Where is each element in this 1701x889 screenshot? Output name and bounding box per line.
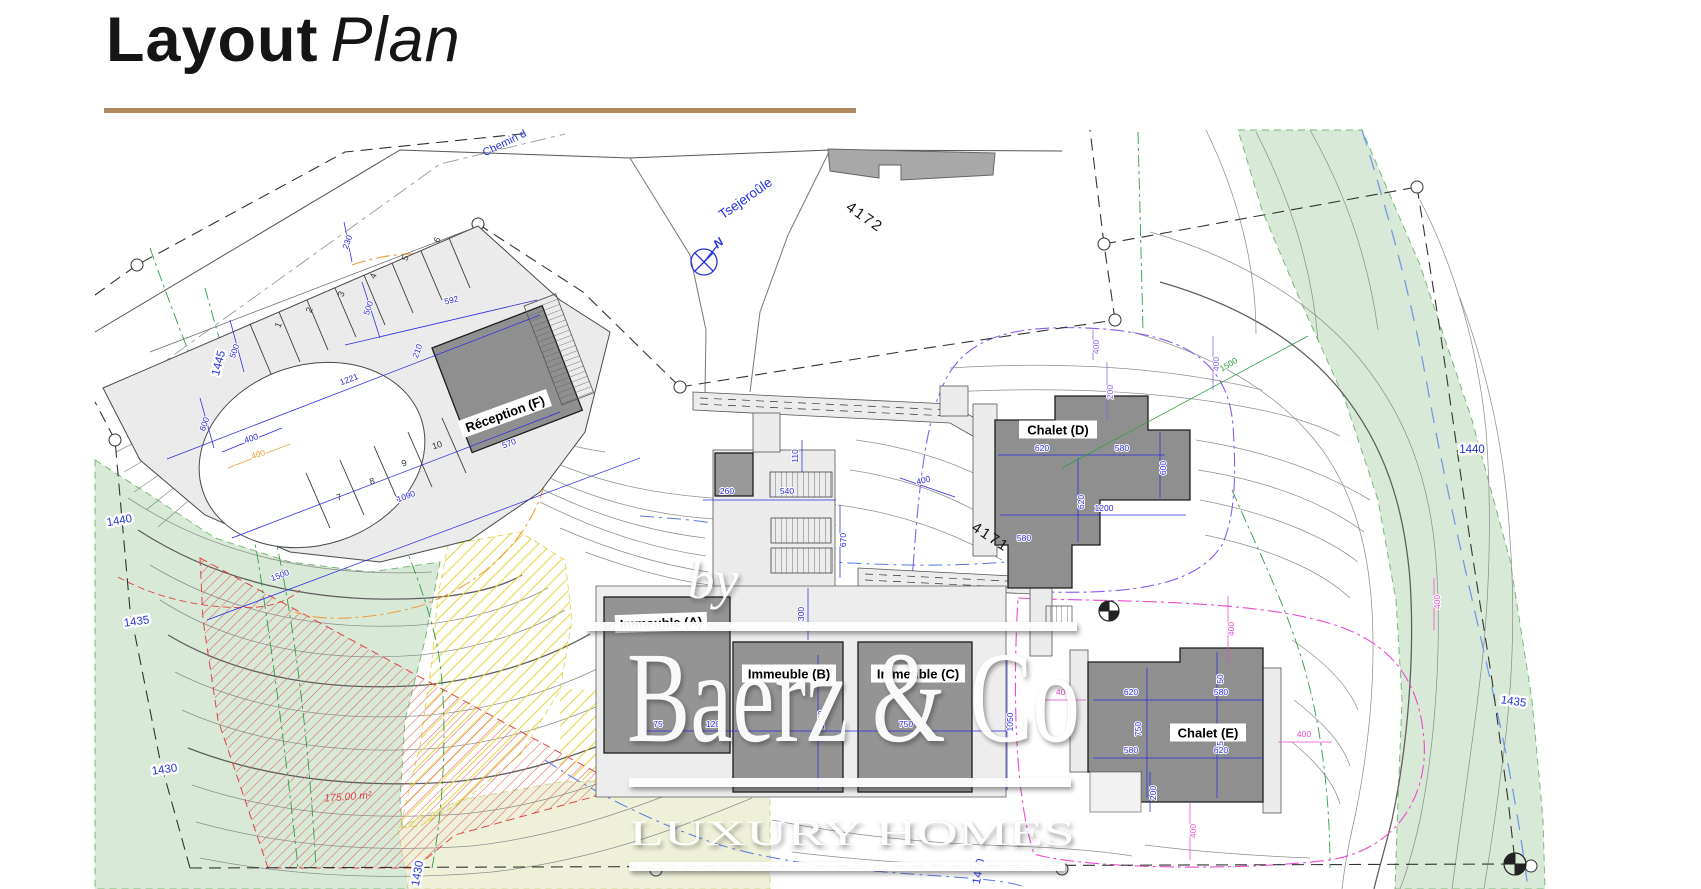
benchmark-symbol-1 [1099,601,1119,621]
building-label: Chalet (E) [1170,724,1246,742]
stair-flight-3 [771,548,832,573]
dimension-label: 580 [1214,687,1228,697]
dimension-label: 400 [915,473,931,486]
watermark-tagline: LUXURY HOMES [629,813,1075,853]
dimension-label: 400 [1226,622,1236,636]
dimension-label: 1200 [1095,503,1114,513]
north-compass [691,246,717,275]
dimension-label: 620 [1124,687,1138,697]
watermark-rule-mid [629,778,1071,787]
building-4172 [828,149,995,180]
layout-plan-page: LayoutPlan [0,0,1701,889]
green-dashdot-line-4 [1138,132,1143,330]
contour-elevation-label: 1440 [1459,444,1485,456]
dimension-label: 620 [1076,495,1086,509]
building-label: Chalet (D) [1019,421,1097,439]
upper-connector [753,413,780,452]
watermark-by: by [688,550,739,610]
site-plan-drawing: 5006004004005002305921221210109057015001… [0,0,1701,889]
watermark-rule-bottom [629,862,1065,871]
dimension-label: 400 [1432,595,1442,609]
green-area-right [1238,130,1545,889]
dimension-label: 200 [1105,385,1115,399]
dimension-label: 50 [1215,674,1225,684]
dimension-label: 580 [1017,533,1031,543]
benchmark-symbol-2 [1504,853,1526,875]
dimension-label: 580 [1115,443,1129,453]
dimension-label: 400 [1297,729,1311,739]
dimension-label: 400 [1091,340,1101,354]
place-label: Tsejeroûle [716,175,775,223]
dimension-label: 260 [720,486,734,496]
chalet-d-entry-steps [940,386,968,416]
contour-elevation-label: 1430 [971,858,987,885]
dimension-label: 230 [340,233,354,250]
parcel-number: 4172 [843,198,887,236]
stair-flight-2 [771,518,831,543]
driveway-edge-left [630,158,706,392]
dimension-label: 110 [790,449,800,463]
building-label-text: Chalet (D) [1027,423,1088,438]
north-label: N [711,235,727,252]
dimension-label: 670 [838,533,848,547]
dimension-label: 750 [1133,722,1143,736]
building-label-text: Chalet (E) [1178,726,1239,741]
dimension-label: 300 [796,607,806,621]
dimension-label: 580 [1124,745,1138,755]
dimension-label: 400 [1188,824,1198,838]
dimension-label: 600 [1158,461,1168,475]
watermark-name: Baerz & Co [627,626,1080,770]
stall-number: 6 [432,236,443,244]
dimension-label: 200 [1148,786,1158,800]
dimension-label: 620 [1035,443,1049,453]
dimension-label: 540 [780,486,794,496]
chalet-e-annex [1090,772,1141,812]
chalet-e-east-strip [1263,668,1281,813]
